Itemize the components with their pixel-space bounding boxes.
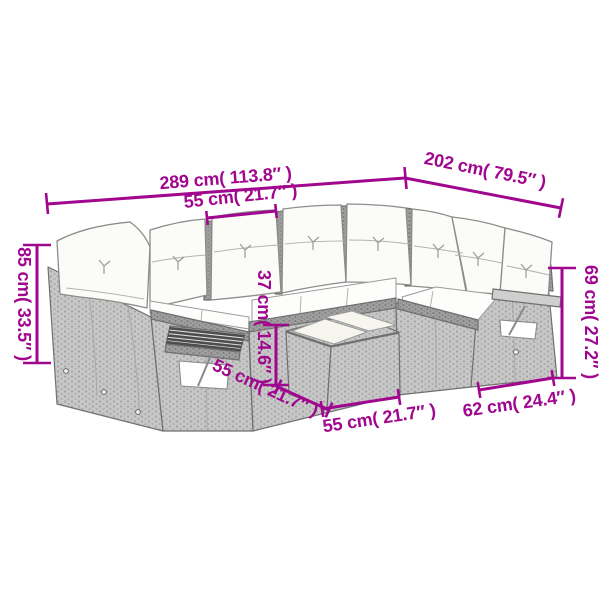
- dim-total-depth: 202 cm( 79.5″ ): [405, 148, 563, 218]
- dim-table-height-label: 37 cm( 14.6″ ): [254, 270, 274, 384]
- rivet: [514, 350, 519, 355]
- dim-arm-height-label: 69 cm( 27.2″ ): [581, 265, 600, 379]
- rivet: [102, 390, 107, 395]
- dim-back-height: 85 cm( 33.5″ ): [14, 245, 51, 363]
- diagram-canvas: 289 cm( 113.8″ ) 202 cm( 79.5″ ) 55 cm( …: [0, 0, 600, 600]
- product-diagram-svg: 289 cm( 113.8″ ) 202 cm( 79.5″ ) 55 cm( …: [0, 0, 600, 600]
- right-shelf-opening: [500, 320, 537, 339]
- back-cushion: [282, 205, 346, 293]
- rivet: [64, 369, 69, 374]
- dim-back-height-label: 85 cm( 33.5″ ): [14, 247, 34, 361]
- rivet: [136, 410, 141, 415]
- back-cushion: [500, 228, 552, 300]
